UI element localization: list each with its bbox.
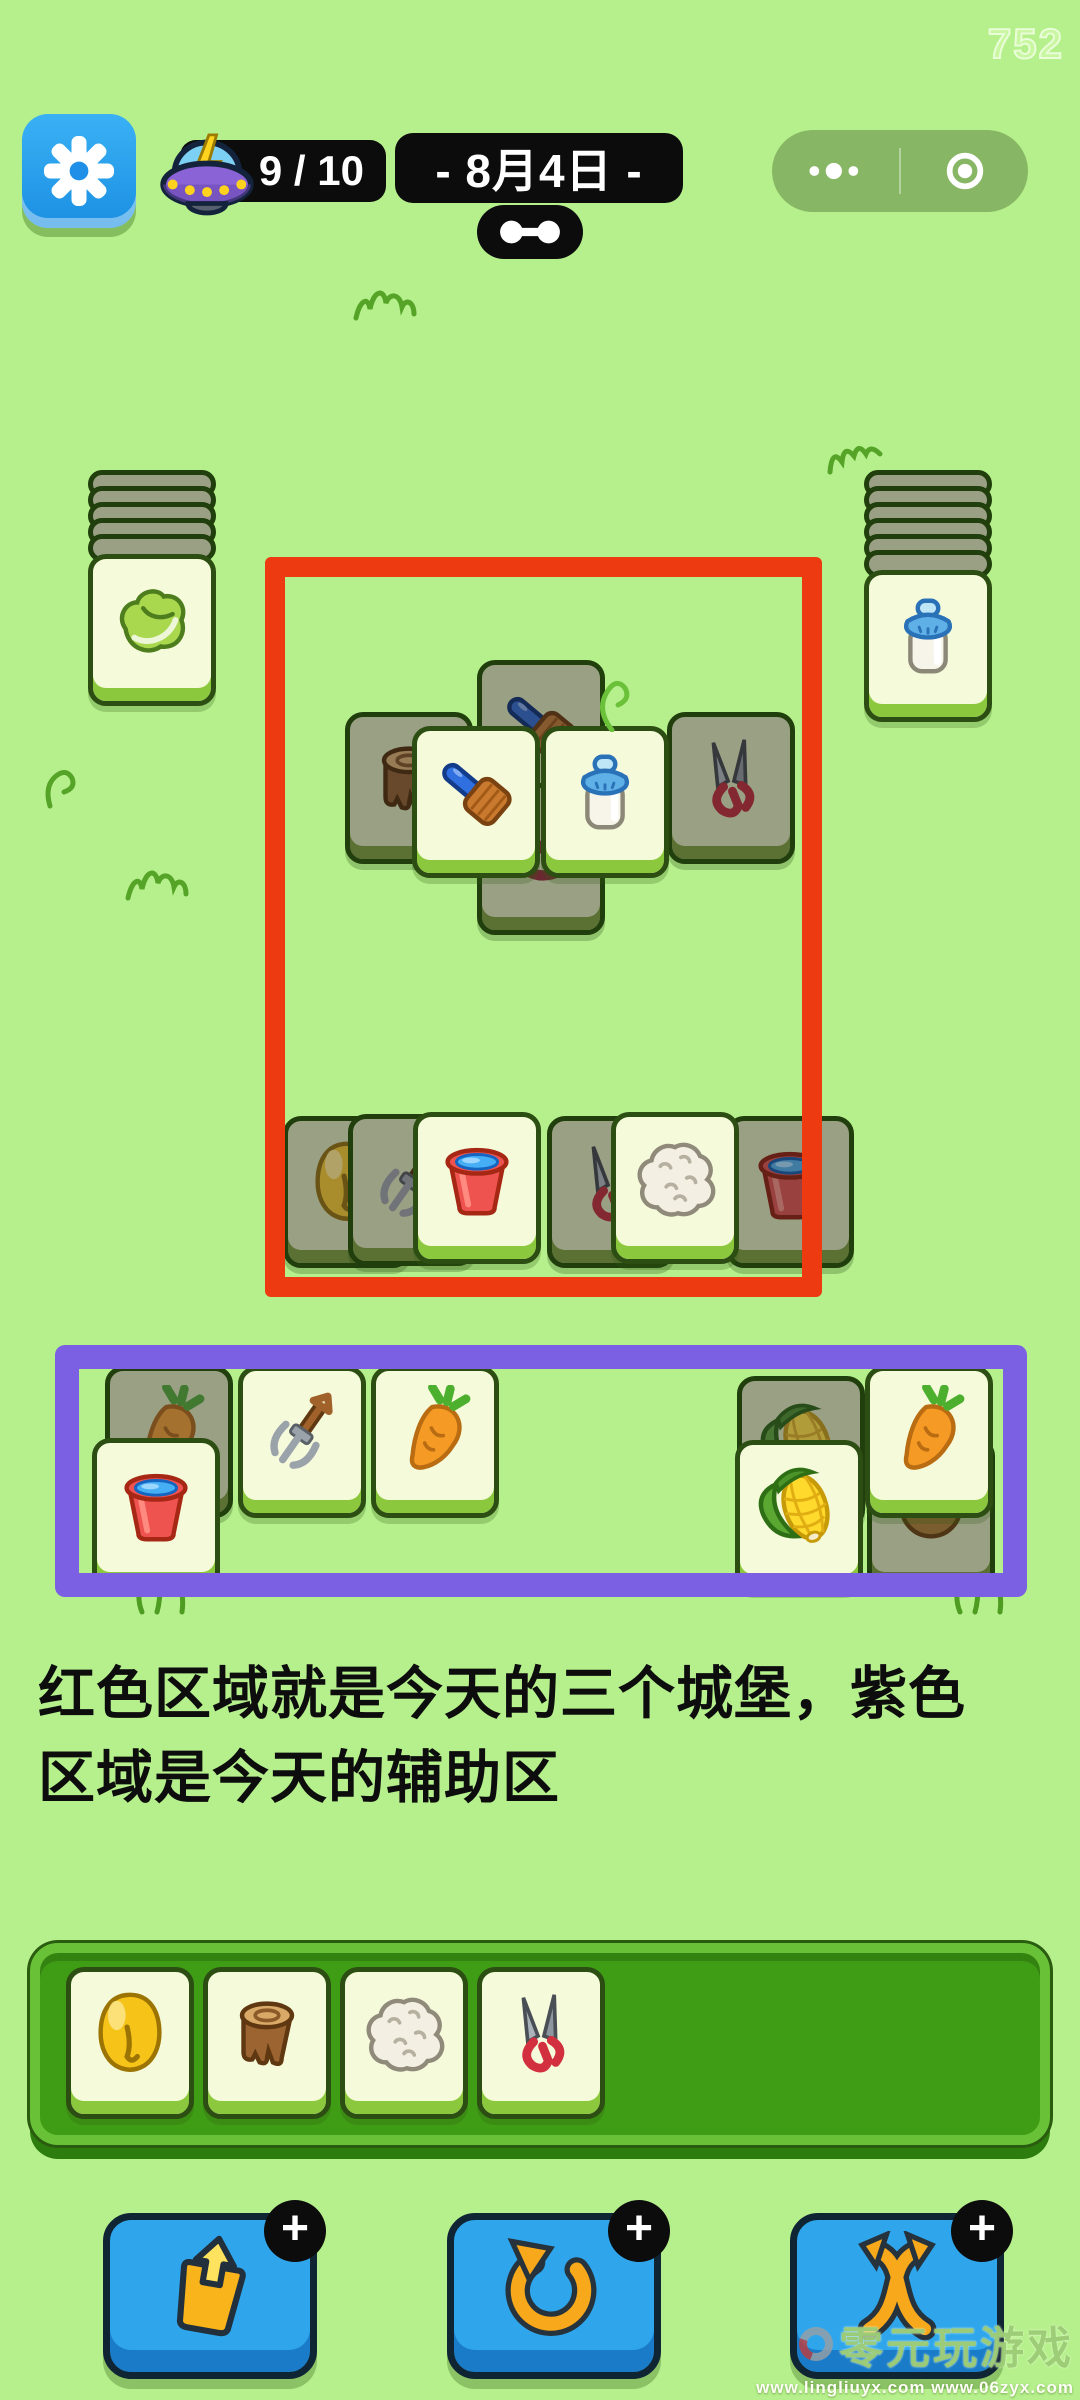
stack-tile-cabbage[interactable] (88, 554, 216, 706)
tile-pitchfork[interactable] (238, 1366, 366, 1518)
tray-tile-stump (203, 1967, 331, 2119)
stump-icon (220, 1986, 314, 2080)
tray-tile-bell (66, 1967, 194, 2119)
tray-tile-wool (340, 1967, 468, 2119)
carrot-icon (388, 1385, 482, 1479)
popout-icon (154, 2231, 266, 2343)
watermark-urls: www.lingliuyx.com www.06zyx.com (756, 2378, 1074, 2398)
popout-button[interactable]: + (103, 2213, 317, 2379)
tile-wool[interactable] (611, 1112, 739, 1264)
tile-milk[interactable] (541, 726, 669, 878)
watermark-brand: 零元玩游戏 (839, 2312, 1074, 2376)
carrot-icon (882, 1385, 976, 1479)
bucket-icon (430, 1131, 524, 1225)
tile-carrot[interactable] (865, 1366, 993, 1518)
undo-button[interactable]: + (447, 2213, 661, 2379)
pitchfork-icon (255, 1385, 349, 1479)
tile-corn[interactable] (735, 1440, 863, 1592)
bucket-icon (109, 1457, 203, 1551)
shears-icon (684, 731, 778, 825)
watermark-logo-icon (793, 2321, 838, 2366)
tile-carrot[interactable] (371, 1366, 499, 1518)
tile-bucket (726, 1116, 854, 1268)
stack-tile-milk[interactable] (864, 570, 992, 722)
wool-icon (628, 1131, 722, 1225)
game-screen: 752 9 / 10 - 8月4日 - 红色区域就是今天的三个城堡，紫 (0, 0, 1080, 2400)
plus-badge[interactable]: + (264, 2200, 326, 2262)
plus-badge[interactable]: + (951, 2200, 1013, 2262)
wool-icon (357, 1986, 451, 2080)
tile-bucket[interactable] (413, 1112, 541, 1264)
shears-icon (494, 1986, 588, 2080)
milk-icon (558, 745, 652, 839)
tile-bucket[interactable] (92, 1438, 220, 1590)
tile-shears (667, 712, 795, 864)
corn-icon (752, 1459, 846, 1553)
bell-icon (83, 1986, 177, 2080)
tile-brush[interactable] (412, 726, 540, 878)
caption-text: 红色区域就是今天的三个城堡，紫色 区域是今天的辅助区 (38, 1652, 1048, 1821)
caption-line-2: 区域是今天的辅助区 (38, 1736, 1048, 1820)
tray-tile-shears (477, 1967, 605, 2119)
caption-line-1: 红色区域就是今天的三个城堡，紫色 (38, 1652, 1048, 1736)
watermark: 零元玩游戏 www.lingliuyx.com www.06zyx.com (756, 2312, 1074, 2398)
brush-icon (429, 745, 523, 839)
bucket-icon (743, 1135, 837, 1229)
collected-tiles-tray (30, 1943, 1050, 2145)
cabbage-icon (105, 573, 199, 667)
milk-icon (881, 589, 975, 683)
undo-icon (498, 2231, 610, 2343)
plus-badge[interactable]: + (608, 2200, 670, 2262)
